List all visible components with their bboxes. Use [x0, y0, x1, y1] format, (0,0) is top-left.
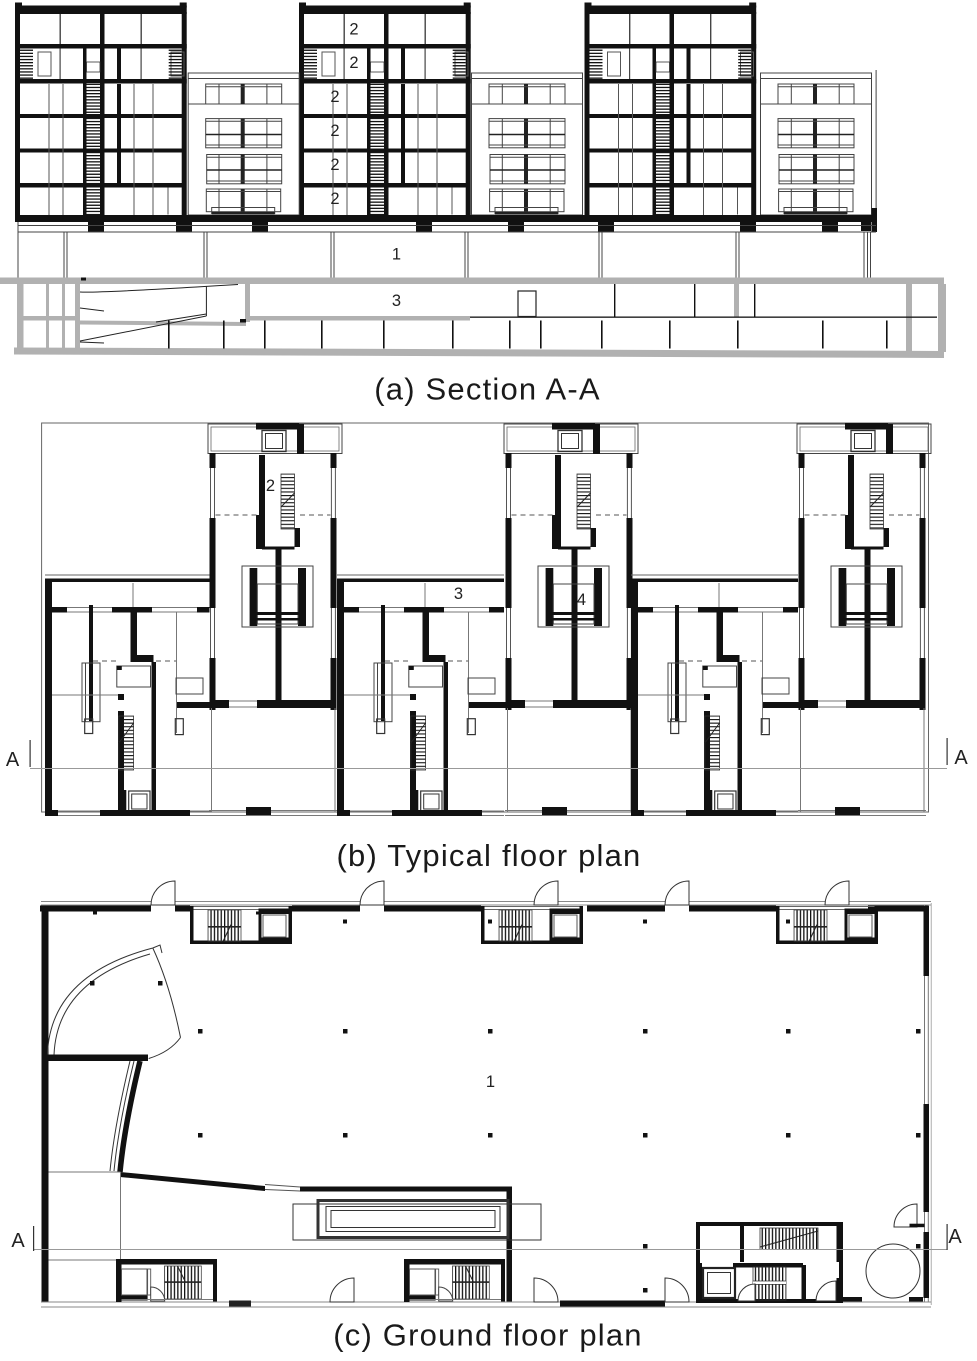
svg-text:A: A	[11, 1230, 25, 1252]
svg-text:(b) Typical floor plan: (b) Typical floor plan	[337, 838, 642, 873]
svg-text:1: 1	[486, 1073, 495, 1091]
svg-text:(a) Section A-A: (a) Section A-A	[374, 372, 600, 407]
svg-text:4: 4	[577, 591, 586, 609]
svg-text:1: 1	[392, 246, 401, 264]
svg-text:2: 2	[266, 477, 275, 495]
svg-text:3: 3	[454, 585, 463, 603]
svg-text:2: 2	[349, 54, 358, 72]
svg-text:A: A	[6, 749, 20, 771]
svg-text:2: 2	[330, 122, 339, 140]
svg-text:2: 2	[330, 190, 339, 208]
svg-text:2: 2	[349, 21, 358, 39]
svg-text:A: A	[954, 747, 968, 769]
svg-text:A: A	[948, 1226, 962, 1248]
svg-text:2: 2	[330, 88, 339, 106]
svg-text:3: 3	[392, 292, 401, 310]
svg-text:(c) Ground floor plan: (c) Ground floor plan	[333, 1318, 643, 1353]
svg-text:2: 2	[330, 156, 339, 174]
